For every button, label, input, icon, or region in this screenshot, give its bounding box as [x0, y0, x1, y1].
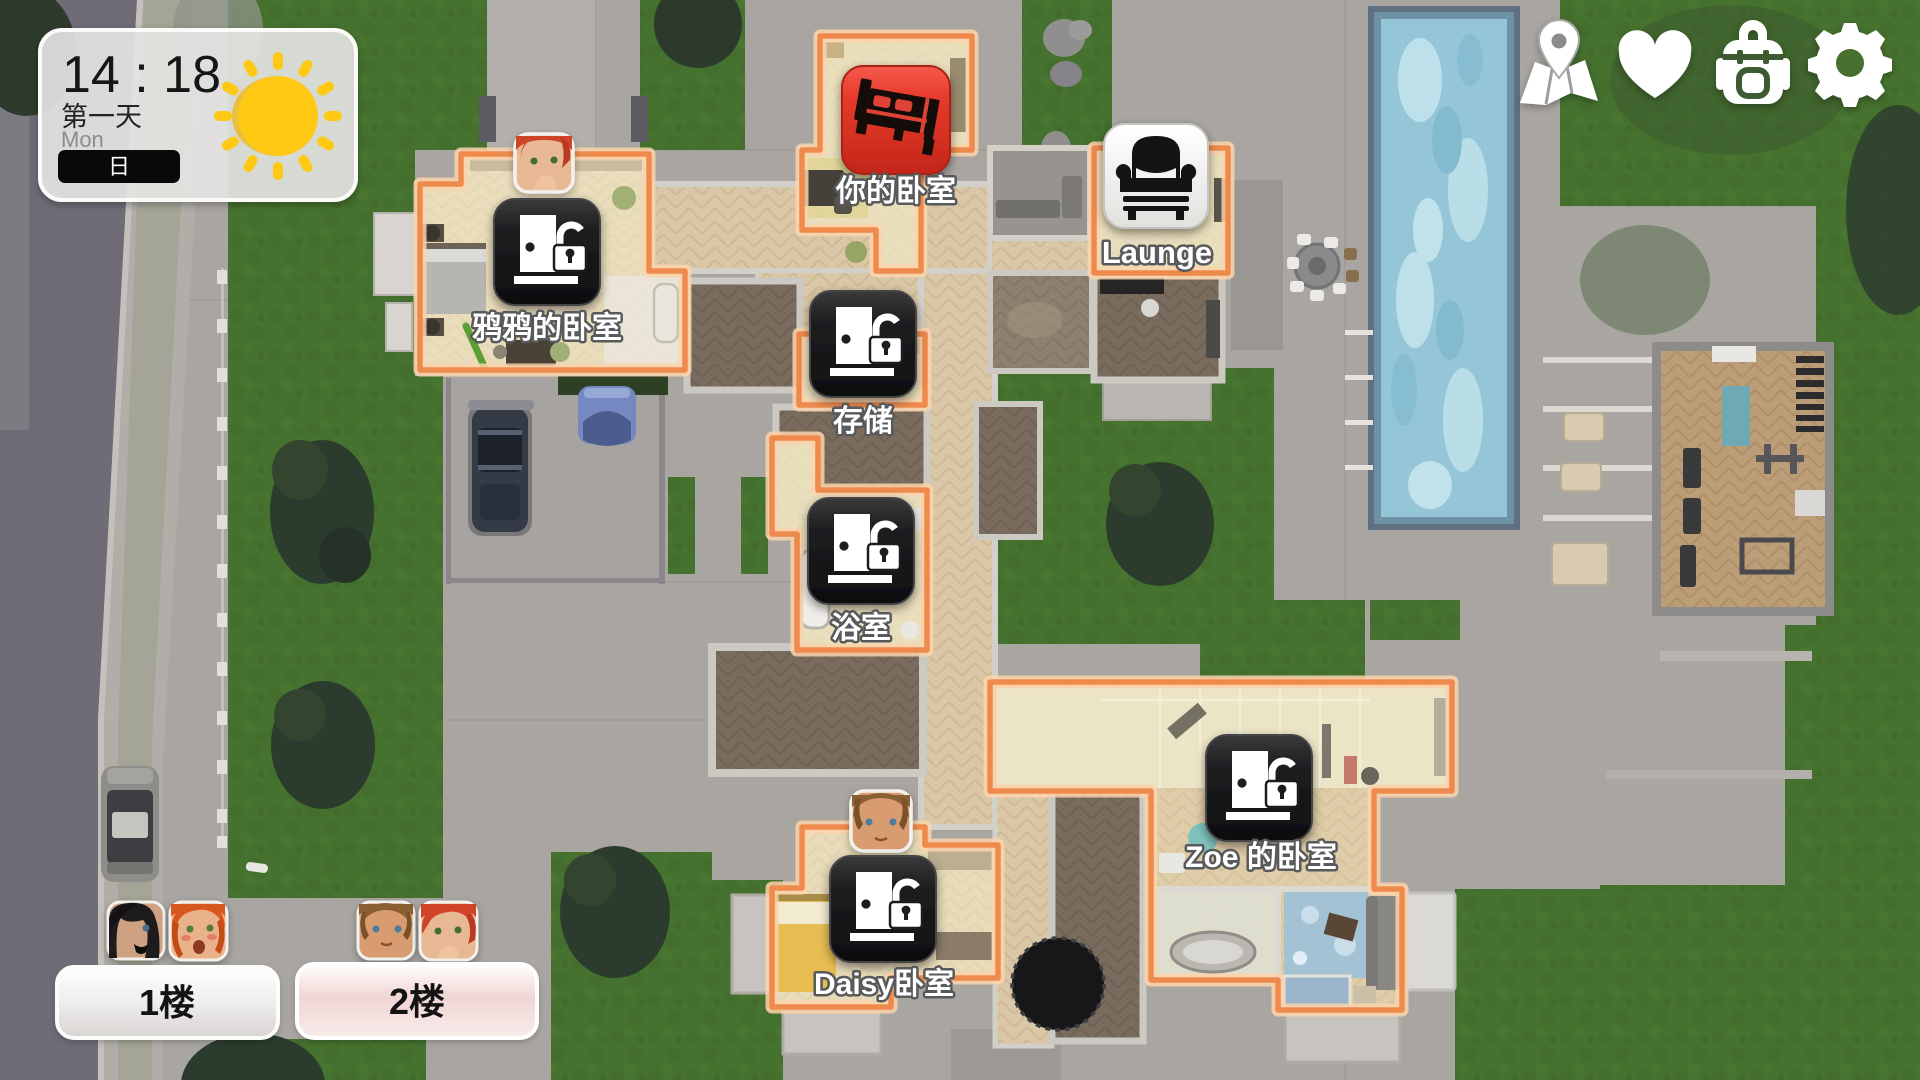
svg-text:你的卧室: 你的卧室	[835, 174, 956, 208]
svg-text:2楼: 2楼	[389, 981, 445, 1022]
svg-text:Launge: Launge	[1102, 235, 1212, 270]
svg-text:存储: 存储	[833, 405, 893, 438]
svg-text:Mon: Mon	[61, 127, 104, 152]
svg-text:鸦鸦的卧室: 鸦鸦的卧室	[472, 311, 622, 345]
svg-text:Daisy卧室: Daisy卧室	[814, 967, 954, 1001]
svg-text:1楼: 1楼	[139, 982, 195, 1023]
svg-text:浴室: 浴室	[831, 611, 891, 645]
svg-text:Zoe 的卧室: Zoe 的卧室	[1185, 840, 1337, 874]
svg-text:日: 日	[108, 154, 130, 179]
svg-text:14 : 18: 14 : 18	[62, 46, 221, 104]
